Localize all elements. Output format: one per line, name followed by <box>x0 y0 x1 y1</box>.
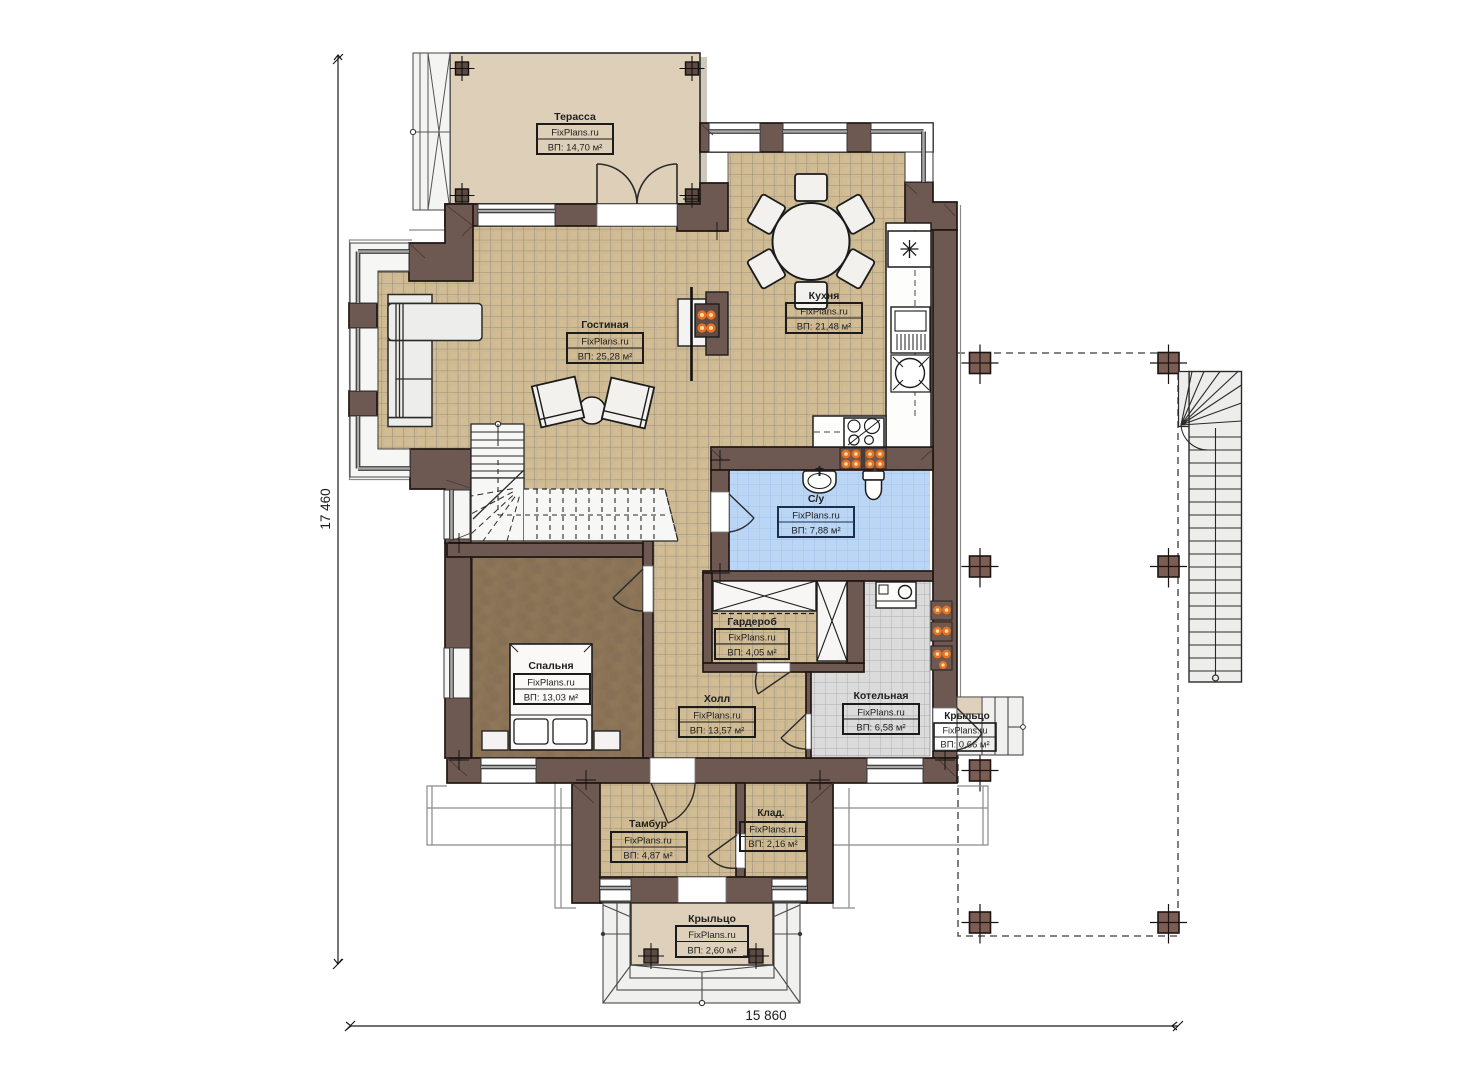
svg-text:15 860: 15 860 <box>745 1008 786 1023</box>
svg-text:ВП: 2,16 м²: ВП: 2,16 м² <box>748 839 797 850</box>
svg-text:Гостиная: Гостиная <box>581 319 628 331</box>
svg-text:FixPlans.ru: FixPlans.ru <box>792 511 840 522</box>
svg-text:FixPlans.ru: FixPlans.ru <box>688 930 736 941</box>
svg-text:ВП: 2,60 м²: ВП: 2,60 м² <box>687 946 736 957</box>
svg-text:Спальня: Спальня <box>528 660 573 672</box>
svg-text:FixPlans.ru: FixPlans.ru <box>942 726 987 736</box>
svg-text:Крыльцо: Крыльцо <box>944 711 990 722</box>
svg-text:Кухня: Кухня <box>809 290 840 302</box>
svg-text:FixPlans.ru: FixPlans.ru <box>857 708 905 719</box>
svg-text:Холл: Холл <box>704 693 730 705</box>
svg-text:ВП: 0,66 м²: ВП: 0,66 м² <box>940 740 989 751</box>
svg-text:FixPlans.ru: FixPlans.ru <box>527 678 575 689</box>
svg-text:ВП: 14,70 м²: ВП: 14,70 м² <box>548 143 603 154</box>
svg-text:Терасса: Терасса <box>554 111 596 123</box>
svg-text:FixPlans.ru: FixPlans.ru <box>581 337 629 348</box>
svg-text:ВП: 21,48 м²: ВП: 21,48 м² <box>797 322 852 333</box>
svg-text:Тамбур: Тамбур <box>629 818 667 830</box>
svg-text:FixPlans.ru: FixPlans.ru <box>728 633 776 644</box>
svg-text:ВП: 25,28 м²: ВП: 25,28 м² <box>578 352 633 363</box>
svg-text:Клад.: Клад. <box>757 808 784 819</box>
svg-text:ВП: 6,58 м²: ВП: 6,58 м² <box>856 723 905 734</box>
svg-text:FixPlans.ru: FixPlans.ru <box>693 711 741 722</box>
svg-text:FixPlans.ru: FixPlans.ru <box>624 836 672 847</box>
svg-text:Гардероб: Гардероб <box>727 616 777 628</box>
svg-text:ВП: 4,05 м²: ВП: 4,05 м² <box>727 648 776 659</box>
svg-text:17 460: 17 460 <box>318 488 333 529</box>
svg-text:FixPlans.ru: FixPlans.ru <box>800 307 848 318</box>
svg-text:Крыльцо: Крыльцо <box>688 913 736 925</box>
svg-text:ВП: 13,03 м²: ВП: 13,03 м² <box>524 693 579 704</box>
svg-text:ВП: 7,88 м²: ВП: 7,88 м² <box>791 526 840 537</box>
svg-text:С/у: С/у <box>808 493 825 505</box>
svg-text:ВП: 13,57 м²: ВП: 13,57 м² <box>690 726 745 737</box>
svg-text:Котельная: Котельная <box>854 690 909 702</box>
svg-text:ВП: 4,87 м²: ВП: 4,87 м² <box>623 851 672 862</box>
svg-text:FixPlans.ru: FixPlans.ru <box>551 128 599 139</box>
svg-text:FixPlans.ru: FixPlans.ru <box>749 825 797 836</box>
